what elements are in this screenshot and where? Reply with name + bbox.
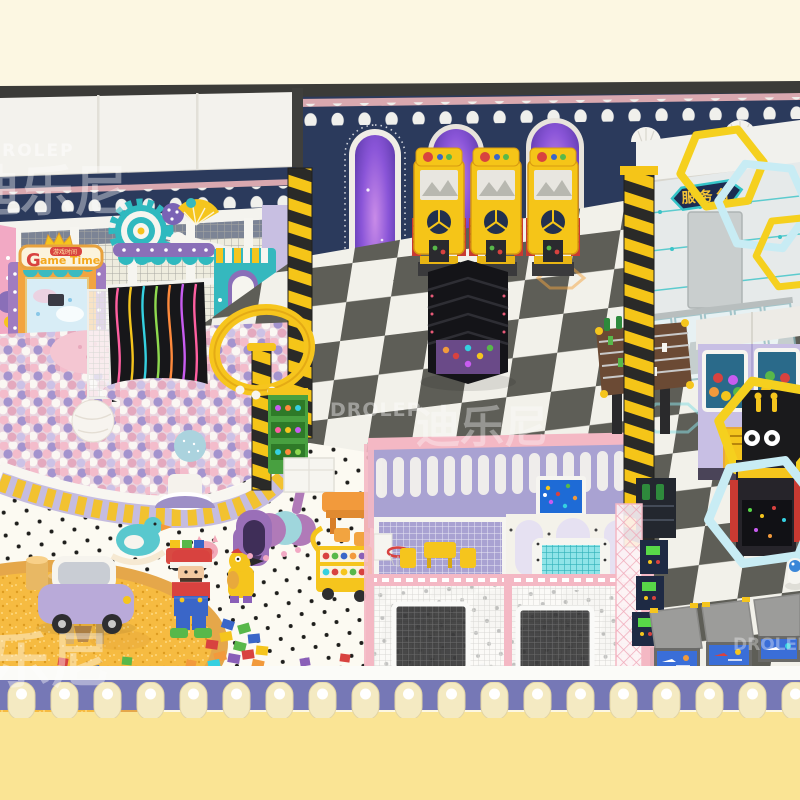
arcade-machine-2 (469, 148, 523, 276)
fence-tabs (0, 682, 800, 718)
watermark-cn-top: 迪乐尼 (0, 160, 128, 223)
arcade-machine-1 (412, 148, 466, 276)
arcade-machines-row (412, 148, 580, 276)
playground-render: G 游戏时间 ame Time (0, 0, 800, 800)
watermark-cn-bottom: 迪乐尼 (0, 627, 110, 697)
soccer-goal-left (394, 604, 468, 670)
foreground-floor (0, 712, 800, 800)
trampoline-enclosure (364, 432, 654, 694)
interactive-table-2 (702, 597, 754, 668)
counter-monitor (688, 212, 742, 308)
fence-white-strip (0, 666, 800, 682)
watermark-brand-top: DROLEP (0, 141, 75, 161)
decor-banner (113, 243, 215, 265)
arcade-machine-3 (526, 148, 580, 276)
interactive-screen (536, 476, 586, 518)
soccer-goal-right (518, 608, 592, 674)
balls-at-wall-base (102, 378, 218, 406)
kids-chair (334, 528, 350, 542)
display-shelf (420, 260, 516, 391)
mini-arcade-1 (640, 540, 668, 574)
white-sphere (72, 400, 114, 442)
game-time-word-ame: ame (40, 254, 66, 267)
watermark-cn-center: 迪乐尼 (416, 402, 548, 453)
game-time-letter-g: G (26, 250, 41, 271)
blue-sphere (174, 430, 206, 462)
game-time-word-time: Time (70, 254, 100, 267)
white-cabinet (284, 458, 334, 492)
watermark-brand-center: DROLEP (330, 399, 422, 421)
mini-arcade-2 (636, 576, 664, 610)
interactive-table-1 (650, 603, 702, 674)
watermark-brand-bottom-right: DROLEP (733, 635, 800, 655)
